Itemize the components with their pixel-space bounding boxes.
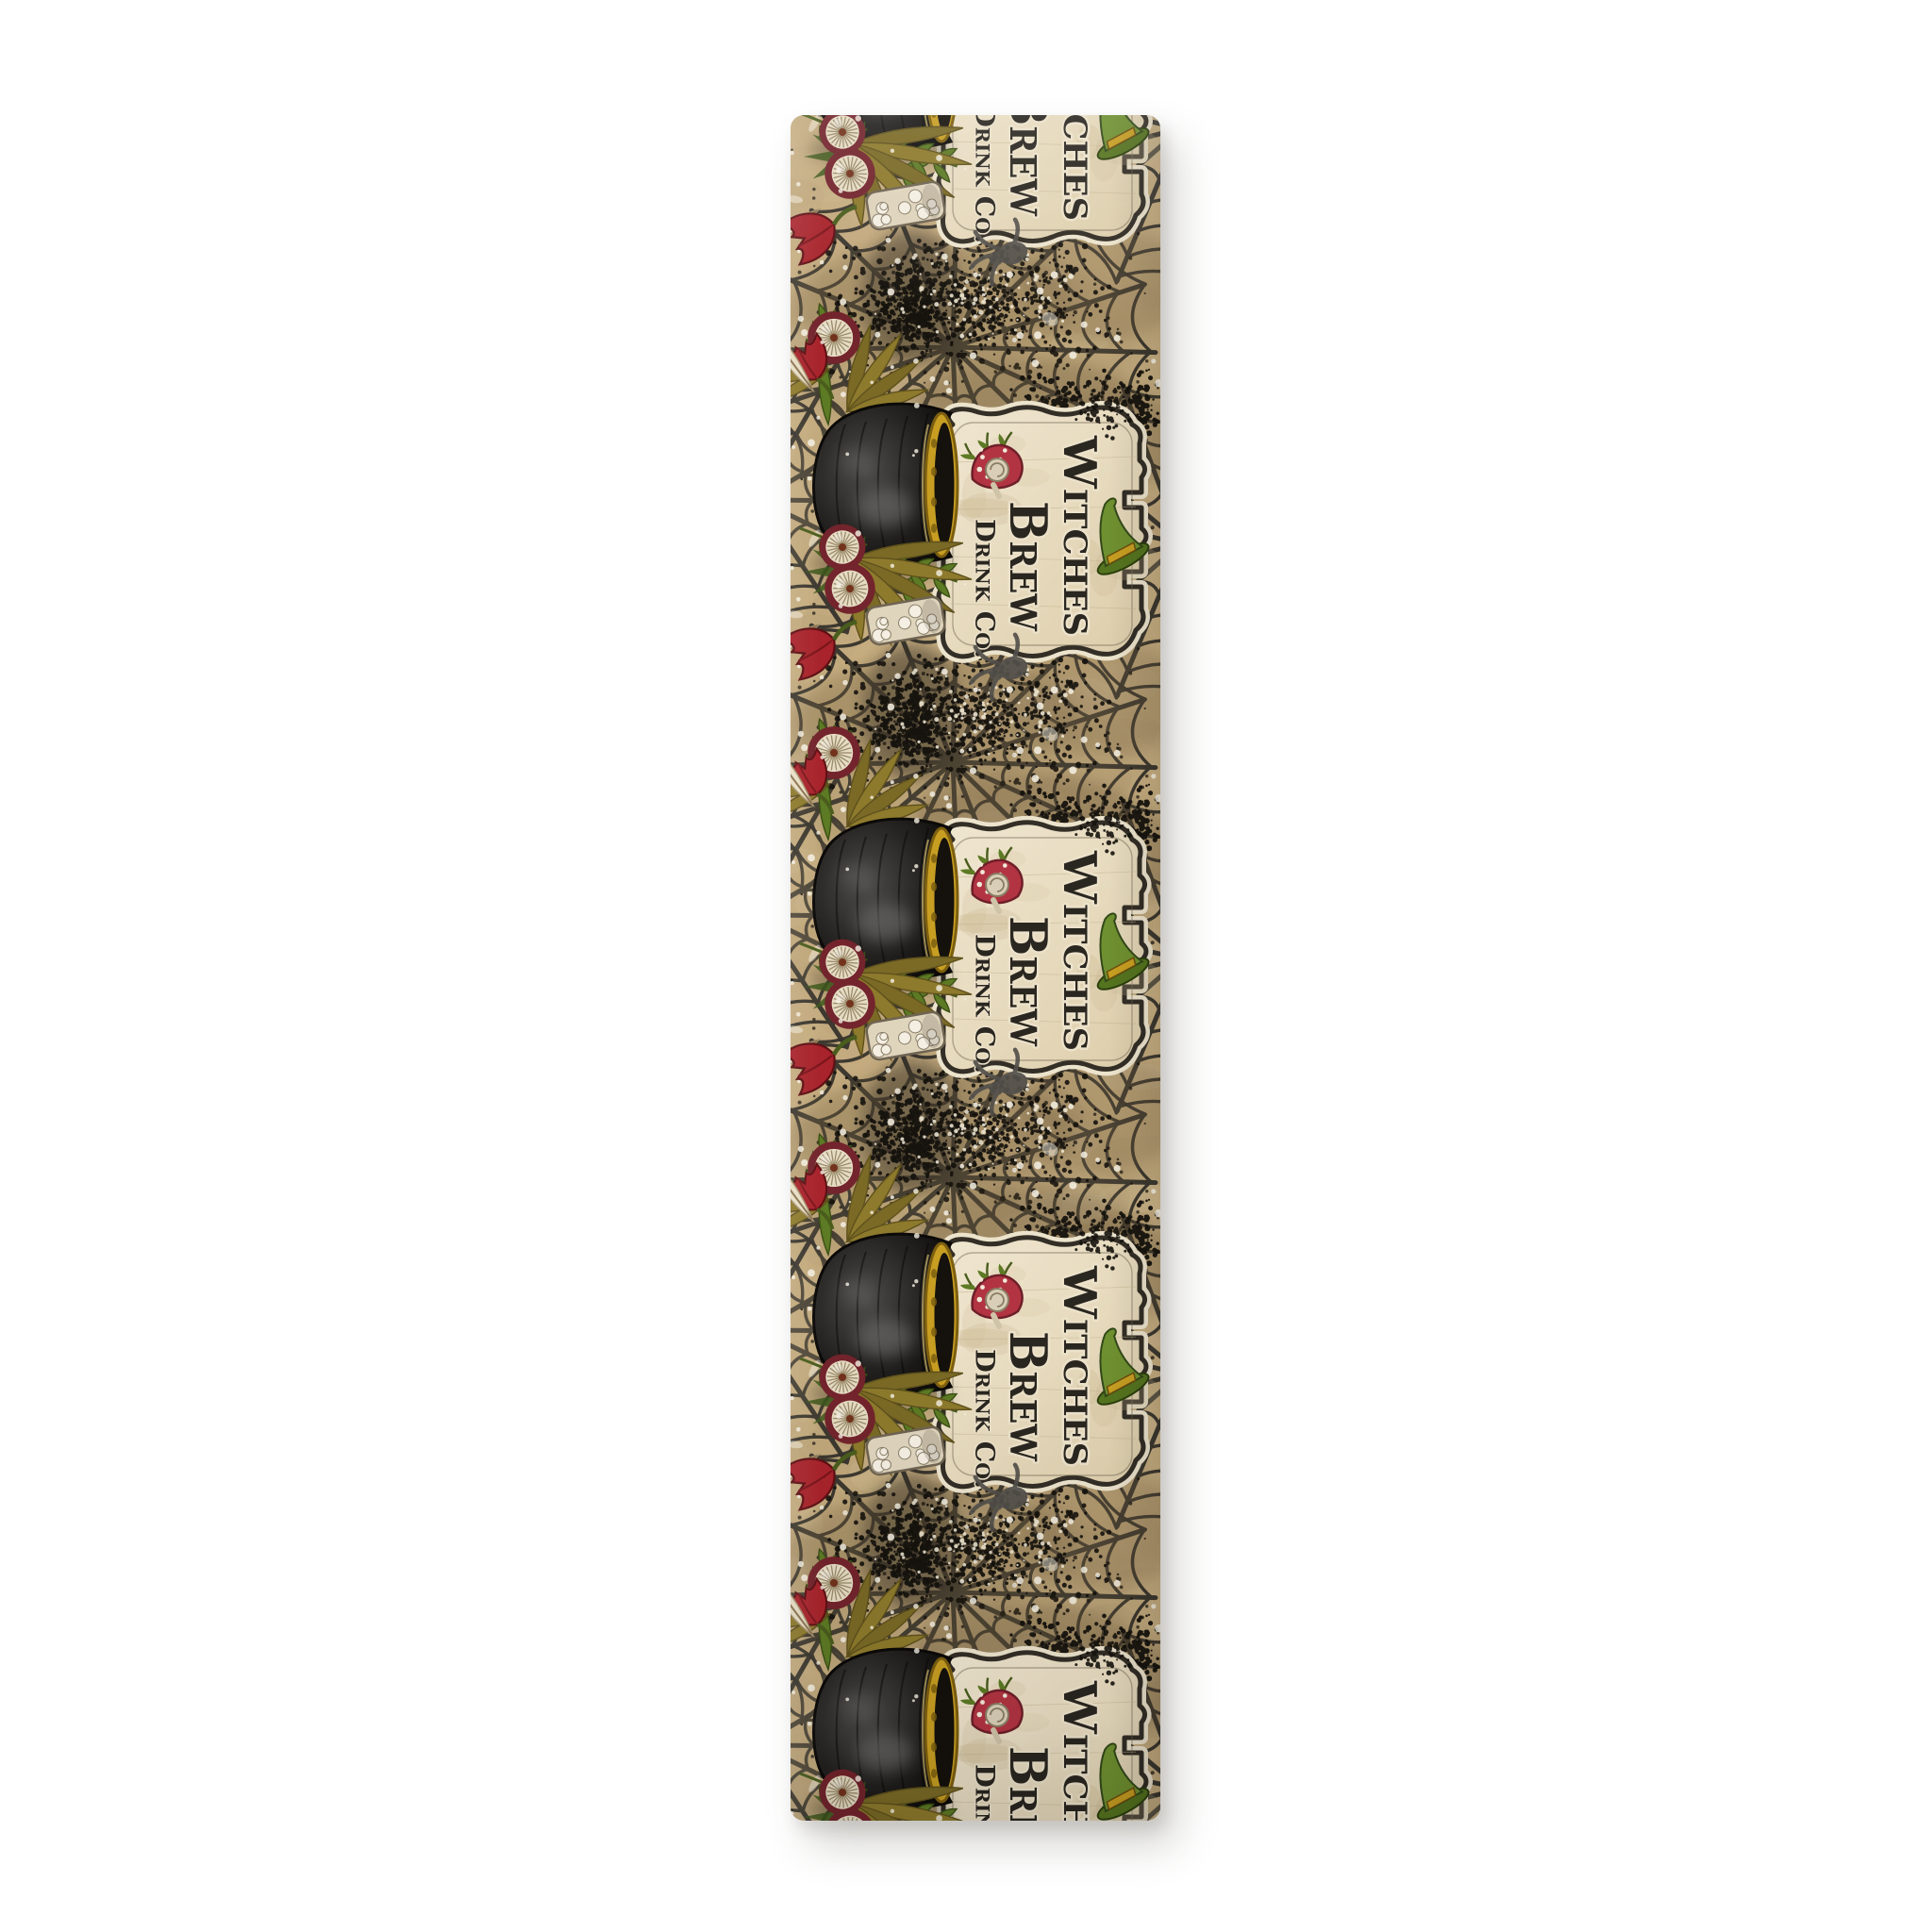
table-runner: Witches Brew Drink Co.: [791, 115, 1160, 1821]
product-photo: Witches Brew Drink Co.: [0, 0, 1932, 1932]
runner-artwork: Witches Brew Drink Co.: [791, 115, 1160, 1821]
